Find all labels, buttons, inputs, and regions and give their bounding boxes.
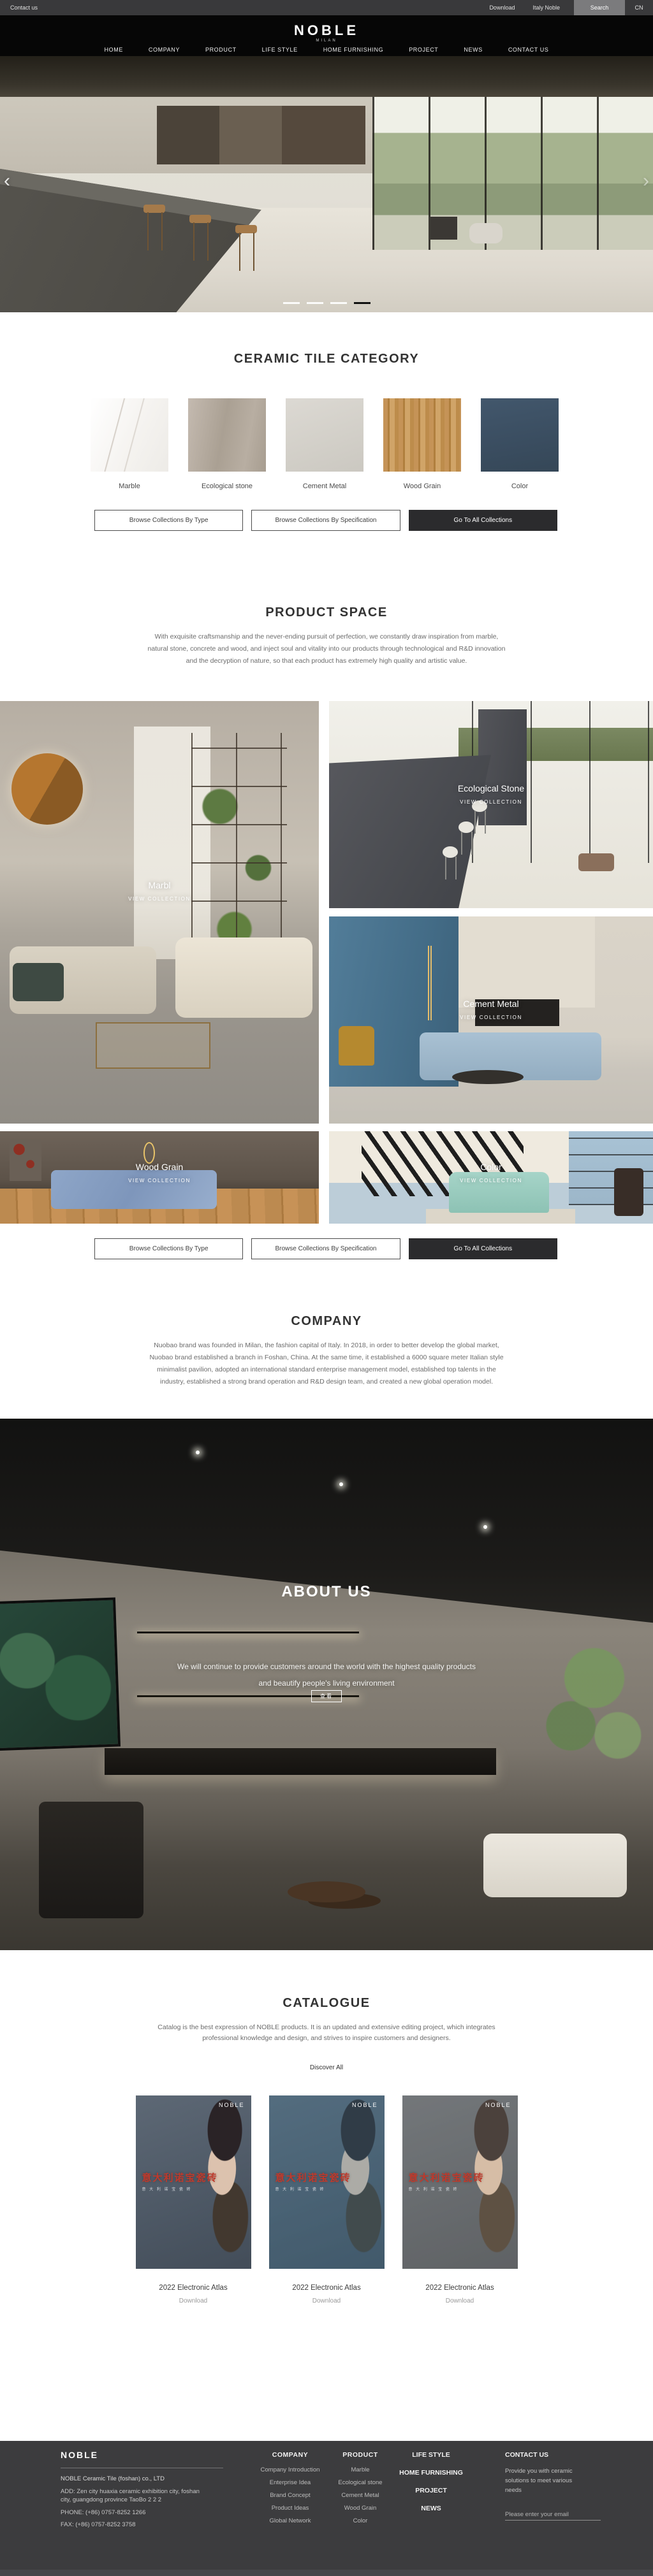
carousel-dash-2[interactable] bbox=[307, 302, 323, 304]
browse-by-type-button[interactable]: Browse Collections By Type bbox=[94, 1238, 243, 1259]
catalogue-download-link[interactable]: Download bbox=[402, 2297, 518, 2305]
category-buttons-row: Browse Collections By Type Browse Collec… bbox=[94, 510, 557, 531]
space-tile-marble[interactable]: Marbl VIEW COLLECTION bbox=[0, 701, 319, 1124]
footer-divider bbox=[61, 2468, 223, 2468]
product-space-buttons-row: Browse Collections By Type Browse Collec… bbox=[94, 1238, 557, 1259]
footer-address: ADD: Zen city huaxia ceramic exhibition … bbox=[61, 2488, 200, 2495]
search-button[interactable]: Search bbox=[574, 0, 625, 15]
cover-brand-logo: NOBLE bbox=[352, 2102, 378, 2108]
eco-scene-stool-art bbox=[443, 846, 458, 879]
cement-scene-mantel-art bbox=[459, 916, 594, 1008]
nav-news[interactable]: NEWS bbox=[464, 47, 482, 53]
view-collection-link[interactable]: VIEW COLLECTION bbox=[329, 1178, 653, 1183]
category-item-marble[interactable]: Marble bbox=[91, 398, 168, 490]
space-tile-color[interactable]: Color VIEW COLLECTION bbox=[329, 1131, 653, 1224]
catalogue-card: NOBLE 意大利诺宝瓷砖 意 大 利 诺 宝 瓷 砖 2022 Electro… bbox=[402, 2095, 518, 2305]
about-plant-art bbox=[536, 1621, 653, 1812]
footer-column-company: COMPANY Company Introduction Enterprise … bbox=[248, 2451, 332, 2524]
marble-swatch-image bbox=[91, 398, 168, 472]
view-collection-link[interactable]: VIEW COLLECTION bbox=[329, 799, 653, 805]
footer-link-cement-metal[interactable]: Cement Metal bbox=[322, 2492, 399, 2499]
space-tile-ecological-stone[interactable]: Ecological Stone VIEW COLLECTION bbox=[329, 701, 653, 908]
catalogue-item-title: 2022 Electronic Atlas bbox=[402, 2284, 518, 2292]
about-armchair-art bbox=[39, 1802, 143, 1918]
tile-title: Marbl bbox=[0, 880, 319, 890]
paragraph-line: industry, established a strong brand ope… bbox=[0, 1376, 653, 1388]
about-shelf-art bbox=[137, 1632, 359, 1633]
carousel-prev-icon[interactable]: ‹ bbox=[4, 171, 10, 191]
tile-title: Color bbox=[329, 1162, 653, 1172]
catalogue-cover-2[interactable]: NOBLE 意大利诺宝瓷砖 意 大 利 诺 宝 瓷 砖 bbox=[269, 2095, 385, 2269]
about-light-art bbox=[483, 1525, 487, 1529]
space-tile-wood-grain[interactable]: Wood Grain VIEW COLLECTION bbox=[0, 1131, 319, 1224]
footer-column-title[interactable]: PRODUCT bbox=[322, 2451, 399, 2459]
hero-stool-art bbox=[143, 205, 165, 252]
category-item-ecological-stone[interactable]: Ecological stone bbox=[188, 398, 266, 490]
site-footer: NOBLE NOBLE Ceramic Tile (foshan) co., L… bbox=[0, 2441, 653, 2576]
cover-subtitle-cn: 意 大 利 诺 宝 瓷 砖 bbox=[275, 2186, 325, 2192]
cover-brand-logo: NOBLE bbox=[485, 2102, 511, 2108]
catalogue-download-link[interactable]: Download bbox=[269, 2297, 385, 2305]
nav-project[interactable]: PROJECT bbox=[409, 47, 438, 53]
tile-title: Wood Grain bbox=[0, 1162, 319, 1172]
browse-by-specification-button[interactable]: Browse Collections By Specification bbox=[251, 1238, 400, 1259]
nav-home-furnishing[interactable]: HOME FURNISHING bbox=[323, 47, 384, 53]
main-nav: HOME COMPANY PRODUCT LIFE STYLE HOME FUR… bbox=[0, 47, 653, 53]
footer-bottom-strip bbox=[0, 2570, 653, 2576]
top-utility-bar: Contact us Download Italy Noble Search C… bbox=[0, 0, 653, 15]
footer-column-product: PRODUCT Marble Ecological stone Cement M… bbox=[322, 2451, 399, 2524]
footer-address: city, guangdong province TaoBo 2 2 2 bbox=[61, 2496, 161, 2503]
language-switch-cn[interactable]: CN bbox=[625, 0, 653, 15]
discover-all-link[interactable]: Discover All bbox=[0, 2064, 653, 2071]
catalogue-item-title: 2022 Electronic Atlas bbox=[136, 2284, 251, 2292]
hero-stool-art bbox=[189, 215, 211, 262]
about-console-art bbox=[105, 1748, 496, 1775]
catalogue-cover-3[interactable]: NOBLE 意大利诺宝瓷砖 意 大 利 诺 宝 瓷 砖 bbox=[402, 2095, 518, 2269]
blurb-line: Provide you with ceramic bbox=[505, 2466, 607, 2476]
tile-title: Ecological Stone bbox=[329, 783, 653, 793]
footer-link-product-ideas[interactable]: Product Ideas bbox=[248, 2505, 332, 2512]
cover-title-cn: 意大利诺宝瓷砖 bbox=[275, 2171, 351, 2184]
cement-metal-swatch-image bbox=[286, 398, 363, 472]
footer-link-home-furnishing[interactable]: HOME FURNISHING bbox=[399, 2469, 463, 2477]
carousel-dash-4-active[interactable] bbox=[354, 302, 371, 304]
carousel-next-icon[interactable]: › bbox=[643, 171, 649, 191]
color-swatch-image bbox=[481, 398, 559, 472]
hero-cabinet-art bbox=[157, 106, 366, 164]
download-link[interactable]: Download bbox=[489, 4, 515, 11]
footer-link-company-introduction[interactable]: Company Introduction bbox=[248, 2466, 332, 2473]
marble-scene-table-art bbox=[96, 1022, 210, 1069]
view-collection-link[interactable]: VIEW COLLECTION bbox=[0, 1178, 319, 1183]
about-coffee-table-art bbox=[288, 1881, 366, 1902]
product-space-section-title: PRODUCT SPACE bbox=[0, 605, 653, 620]
nav-company[interactable]: COMPANY bbox=[149, 47, 180, 53]
hero-ceiling-art bbox=[0, 56, 653, 97]
category-item-color[interactable]: Color bbox=[481, 398, 559, 490]
footer-link-brand-concept[interactable]: Brand Concept bbox=[248, 2492, 332, 2499]
site-header: NOBLE MILAN HOME COMPANY PRODUCT LIFE ST… bbox=[0, 15, 653, 56]
cement-scene-chair-art bbox=[339, 1026, 374, 1066]
marble-scene-wall-art bbox=[11, 753, 83, 825]
paragraph-line: We will continue to provide customers ar… bbox=[0, 1658, 653, 1675]
marble-scene-sofa-art bbox=[175, 937, 312, 1018]
footer-fax: FAX: (+86) 0757-8252 3758 bbox=[61, 2521, 136, 2528]
browse-by-type-button[interactable]: Browse Collections By Type bbox=[94, 510, 243, 531]
footer-link-wood-grain[interactable]: Wood Grain bbox=[322, 2505, 399, 2512]
hero-carousel: ‹ › bbox=[0, 56, 653, 312]
browse-by-specification-button[interactable]: Browse Collections By Specification bbox=[251, 510, 400, 531]
category-item-cement-metal[interactable]: Cement Metal bbox=[286, 398, 363, 490]
marble-scene-throw-art bbox=[13, 963, 64, 1001]
nav-home[interactable]: HOME bbox=[105, 47, 123, 53]
product-space-paragraph: With exquisite craftsmanship and the nev… bbox=[0, 631, 653, 667]
footer-link-life-style[interactable]: LIFE STYLE bbox=[399, 2451, 463, 2459]
catalogue-paragraph: Catalog is the best expression of NOBLE … bbox=[0, 2022, 653, 2044]
footer-link-ecological-stone[interactable]: Ecological stone bbox=[322, 2479, 399, 2486]
italy-noble-link[interactable]: Italy Noble bbox=[532, 4, 560, 11]
paragraph-line: Catalog is the best expression of NOBLE … bbox=[0, 2022, 653, 2033]
hero-window-mullions-art bbox=[372, 92, 653, 250]
category-item-wood-grain[interactable]: Wood Grain bbox=[383, 398, 461, 490]
blurb-line: solutions to meet various bbox=[505, 2476, 607, 2486]
cover-brand-logo: NOBLE bbox=[219, 2102, 245, 2108]
space-tile-cement-metal[interactable]: Cement Metal VIEW COLLECTION bbox=[329, 916, 653, 1124]
about-us-title: ABOUT US bbox=[0, 1583, 653, 1601]
paragraph-line: With exquisite craftsmanship and the nev… bbox=[0, 631, 653, 643]
catalogue-card: NOBLE 意大利诺宝瓷砖 意 大 利 诺 宝 瓷 砖 2022 Electro… bbox=[269, 2095, 385, 2305]
brand-logo[interactable]: NOBLE bbox=[0, 22, 653, 39]
cover-subtitle-cn: 意 大 利 诺 宝 瓷 砖 bbox=[409, 2186, 459, 2192]
nav-product[interactable]: PRODUCT bbox=[205, 47, 237, 53]
paragraph-line: and beautify people's living environment bbox=[0, 1675, 653, 1691]
ecological-stone-swatch-image bbox=[188, 398, 266, 472]
paragraph-line: Nuobao brand was founded in Milan, the f… bbox=[0, 1340, 653, 1352]
about-us-banner: ABOUT US We will continue to provide cus… bbox=[0, 1419, 653, 1950]
hero-cube-stool-art bbox=[430, 217, 457, 240]
hero-pouf-art bbox=[469, 223, 503, 243]
topbar-right-group: Download Italy Noble Search CN bbox=[480, 0, 653, 15]
paragraph-line: minimalist pavilion, adopted an internat… bbox=[0, 1364, 653, 1376]
catalogue-section-title: CATALOGUE bbox=[0, 1996, 653, 2011]
eco-scene-bench-art bbox=[578, 853, 614, 871]
footer-column-links: LIFE STYLE HOME FURNISHING PROJECT NEWS bbox=[399, 2451, 463, 2512]
footer-column-title[interactable]: COMPANY bbox=[248, 2451, 332, 2459]
about-sofa-art bbox=[483, 1834, 627, 1897]
catalogue-card: NOBLE 意大利诺宝瓷砖 意 大 利 诺 宝 瓷 砖 2022 Electro… bbox=[136, 2095, 251, 2305]
paragraph-line: professional knowledge and design, and s… bbox=[0, 2033, 653, 2044]
company-section-title: COMPANY bbox=[0, 1314, 653, 1329]
category-label: Ecological stone bbox=[188, 482, 266, 490]
brand-logo-subtitle: MILAN bbox=[0, 39, 653, 43]
carousel-dash-3[interactable] bbox=[330, 302, 347, 304]
eco-scene-stool-art bbox=[459, 821, 474, 855]
about-more-button[interactable]: 查看 bbox=[311, 1690, 342, 1702]
blurb-line: needs bbox=[505, 2486, 607, 2495]
catalogue-item-title: 2022 Electronic Atlas bbox=[269, 2284, 385, 2292]
wood-scene-mirror-art bbox=[143, 1142, 155, 1164]
footer-logo: NOBLE bbox=[61, 2450, 98, 2460]
footer-phone: PHONE: (+86) 0757-8252 1266 bbox=[61, 2509, 145, 2516]
category-label: Marble bbox=[91, 482, 168, 490]
footer-link-enterprise-idea[interactable]: Enterprise Idea bbox=[248, 2479, 332, 2486]
category-section-title: CERAMIC TILE CATEGORY bbox=[0, 352, 653, 366]
footer-link-color[interactable]: Color bbox=[322, 2517, 399, 2524]
hero-window-art bbox=[372, 92, 653, 250]
go-to-all-collections-button[interactable]: Go To All Collections bbox=[409, 1238, 557, 1259]
nav-life-style[interactable]: LIFE STYLE bbox=[262, 47, 298, 53]
category-label: Cement Metal bbox=[286, 482, 363, 490]
nav-contact-us[interactable]: CONTACT US bbox=[508, 47, 549, 53]
hero-stool-art bbox=[235, 225, 257, 272]
cover-title-cn: 意大利诺宝瓷砖 bbox=[409, 2171, 485, 2184]
company-paragraph: Nuobao brand was founded in Milan, the f… bbox=[0, 1340, 653, 1388]
footer-link-marble[interactable]: Marble bbox=[322, 2466, 399, 2473]
footer-link-global-network[interactable]: Global Network bbox=[248, 2517, 332, 2524]
tile-overlay: Wood Grain VIEW COLLECTION bbox=[0, 1162, 319, 1183]
category-label: Wood Grain bbox=[383, 482, 461, 490]
tile-overlay: Color VIEW COLLECTION bbox=[329, 1162, 653, 1183]
cement-scene-table-art bbox=[452, 1070, 524, 1085]
about-us-paragraph: We will continue to provide customers ar… bbox=[0, 1658, 653, 1691]
footer-column-title[interactable]: CONTACT US bbox=[505, 2451, 607, 2459]
contact-us-link[interactable]: Contact us bbox=[10, 4, 38, 11]
category-label: Color bbox=[481, 482, 559, 490]
footer-contact-blurb: Provide you with ceramic solutions to me… bbox=[505, 2466, 607, 2495]
catalogue-cover-1[interactable]: NOBLE 意大利诺宝瓷砖 意 大 利 诺 宝 瓷 砖 bbox=[136, 2095, 251, 2269]
catalogue-covers-row: NOBLE 意大利诺宝瓷砖 意 大 利 诺 宝 瓷 砖 2022 Electro… bbox=[0, 2095, 653, 2305]
catalogue-download-link[interactable]: Download bbox=[136, 2297, 251, 2305]
category-swatches: Marble Ecological stone Cement Metal Woo… bbox=[91, 398, 559, 490]
cover-title-cn: 意大利诺宝瓷砖 bbox=[142, 2171, 218, 2184]
paragraph-line: Nuobao brand established a branch in Fos… bbox=[0, 1352, 653, 1364]
footer-link-project[interactable]: PROJECT bbox=[399, 2487, 463, 2494]
wood-grain-swatch-image bbox=[383, 398, 461, 472]
footer-link-news[interactable]: NEWS bbox=[399, 2505, 463, 2512]
carousel-dash-1[interactable] bbox=[283, 302, 300, 304]
footer-column-contact: CONTACT US Provide you with ceramic solu… bbox=[505, 2451, 607, 2521]
noble-homepage: Contact us Download Italy Noble Search C… bbox=[0, 0, 653, 2576]
cover-subtitle-cn: 意 大 利 诺 宝 瓷 砖 bbox=[142, 2186, 192, 2192]
tile-overlay: Marbl VIEW COLLECTION bbox=[0, 880, 319, 902]
footer-company-name: NOBLE Ceramic Tile (foshan) co., LTD bbox=[61, 2475, 165, 2482]
view-collection-link[interactable]: VIEW COLLECTION bbox=[0, 896, 319, 902]
newsletter-email-input[interactable] bbox=[505, 2509, 601, 2521]
tile-overlay: Cement Metal VIEW COLLECTION bbox=[329, 999, 653, 1020]
paragraph-line: natural stone, concrete and wood, and in… bbox=[0, 643, 653, 655]
tile-title: Cement Metal bbox=[329, 999, 653, 1009]
carousel-indicators bbox=[0, 302, 653, 304]
tile-overlay: Ecological Stone VIEW COLLECTION bbox=[329, 783, 653, 805]
view-collection-link[interactable]: VIEW COLLECTION bbox=[329, 1015, 653, 1020]
go-to-all-collections-button[interactable]: Go To All Collections bbox=[409, 510, 557, 531]
paragraph-line: and the decryption of nature, so that ea… bbox=[0, 655, 653, 667]
